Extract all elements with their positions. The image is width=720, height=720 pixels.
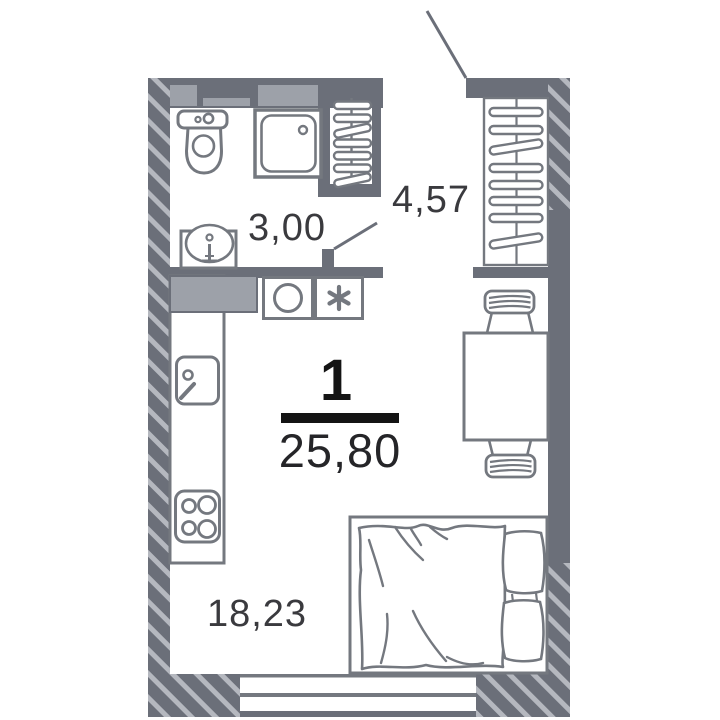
dining-table-icon	[464, 333, 548, 440]
apartment-summary: 1 25,80	[279, 348, 402, 477]
kitchen-sink-icon	[177, 357, 219, 404]
pillow	[502, 600, 544, 661]
living-area-label: 18,23	[207, 593, 307, 635]
toilet-icon	[178, 111, 227, 173]
chair-icon	[486, 440, 535, 477]
entrance-door-icon	[427, 11, 466, 78]
wall-door-stub	[322, 249, 334, 278]
hallway: 4,57	[392, 98, 548, 265]
summary-divider	[281, 413, 399, 423]
wall-top-right	[466, 78, 548, 98]
hallway-area-label: 4,57	[392, 179, 470, 221]
floor-plan-page: 3,00 4,57	[0, 0, 720, 720]
total-area-label: 25,80	[279, 424, 402, 477]
stove-icon	[176, 491, 220, 542]
vent-shaft	[203, 98, 250, 106]
wall-niche-bottom	[318, 184, 381, 197]
rooms-count-label: 1	[320, 348, 352, 413]
pillow	[503, 531, 545, 593]
kitchen-cabinet-block	[170, 276, 257, 312]
washing-machine-icon	[264, 278, 313, 319]
blanket	[359, 525, 505, 669]
vent-shaft	[170, 85, 197, 106]
vent-shaft	[258, 85, 318, 106]
towel-radiator-icon	[334, 98, 372, 188]
wall-right-solid	[548, 210, 570, 563]
wall-niche-side	[372, 98, 381, 197]
chair-icon	[485, 291, 534, 333]
wall-left	[148, 78, 170, 717]
living-room: 18,23	[207, 291, 548, 673]
fridge-icon	[316, 278, 363, 319]
double-bed-icon	[350, 517, 547, 673]
bathroom-area-label: 3,00	[248, 207, 326, 249]
wall-hall-bottom	[473, 267, 548, 278]
floor-plan: 3,00 4,57	[0, 0, 720, 720]
window-icon	[240, 674, 476, 717]
washbasin-icon	[181, 225, 236, 268]
bathroom-door-icon	[334, 223, 377, 249]
wardrobe-icon	[484, 98, 548, 265]
shower-icon	[255, 110, 321, 177]
